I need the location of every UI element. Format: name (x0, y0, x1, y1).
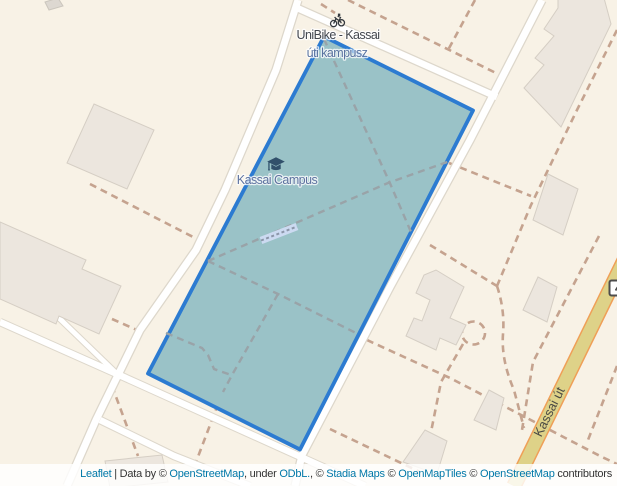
svg-text:UniBike - Kassai: UniBike - Kassai (297, 28, 380, 42)
svg-text:Kassai Campus: Kassai Campus (237, 173, 318, 187)
svg-text:úti kampusz: úti kampusz (307, 46, 368, 60)
